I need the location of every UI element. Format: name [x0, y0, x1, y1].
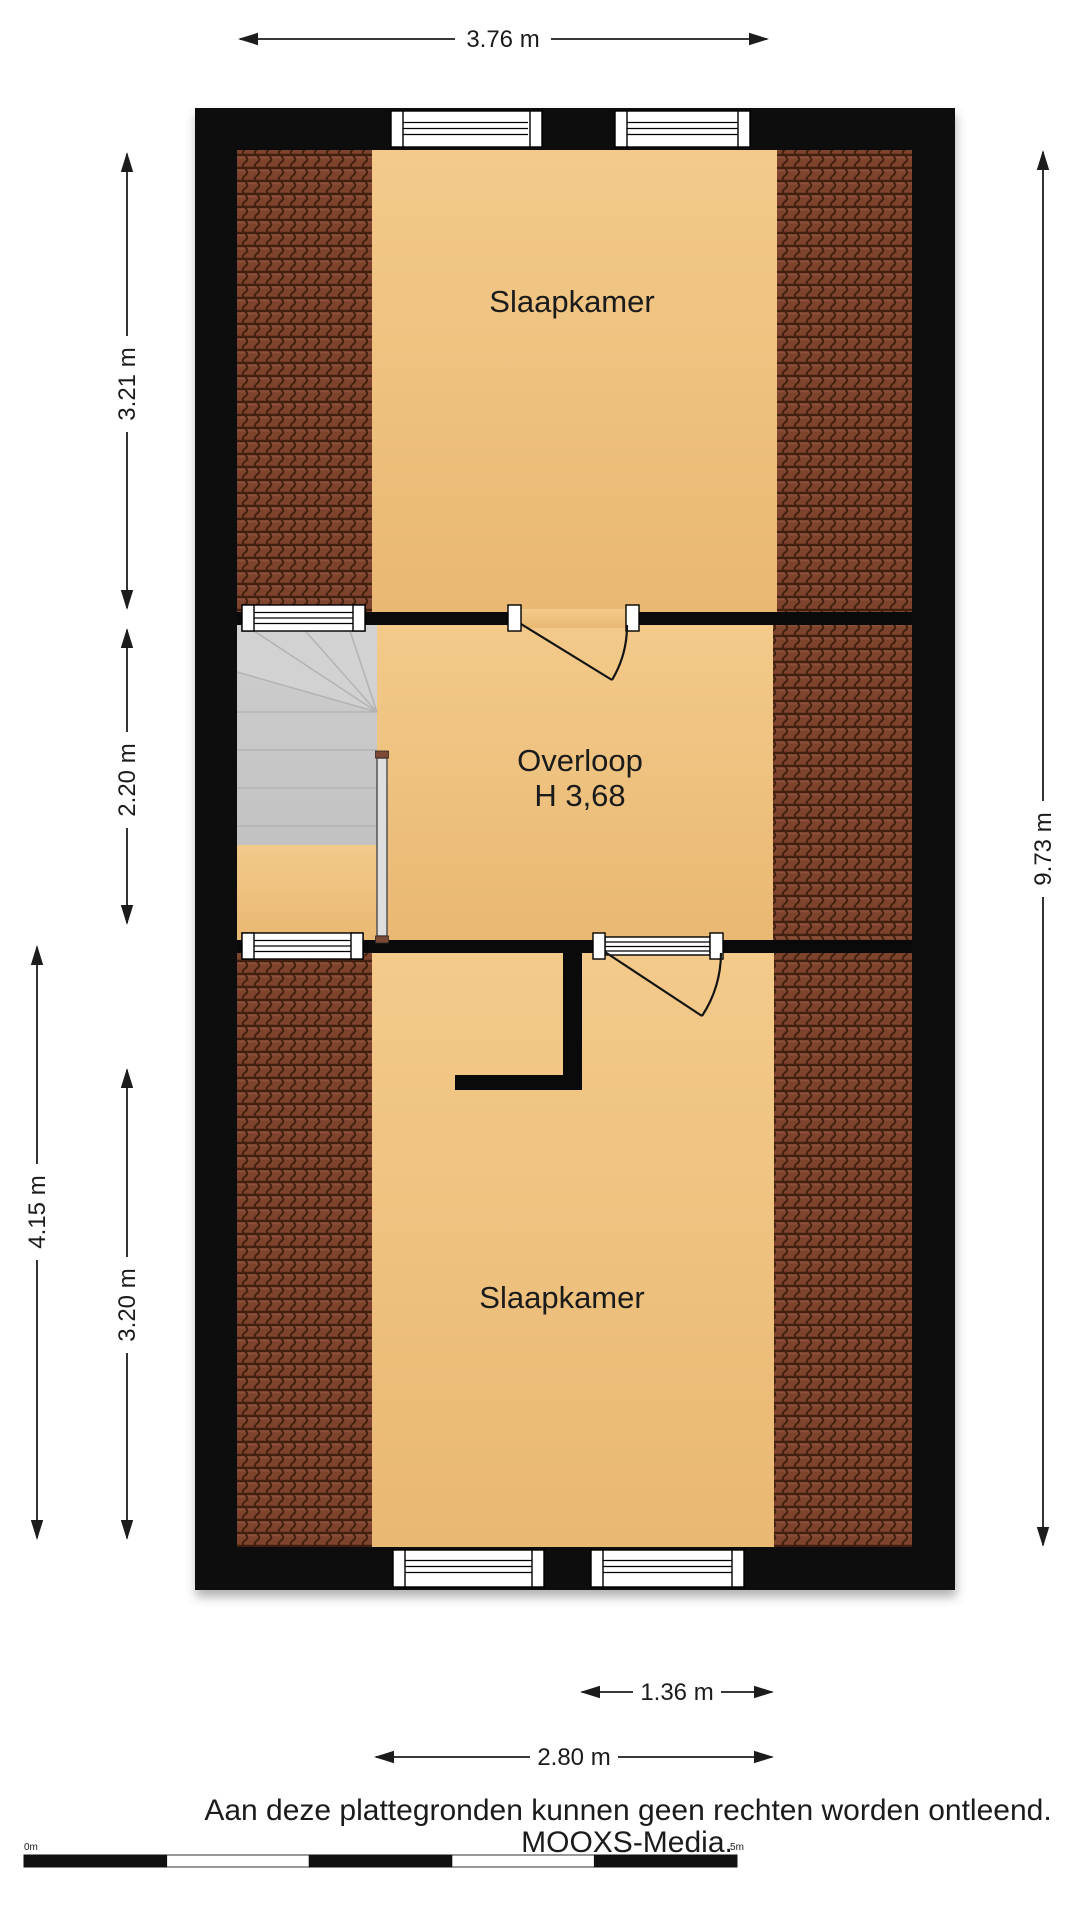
banister-cap-top	[376, 751, 389, 758]
floorplan-canvas: Slaapkamer Overloop H 3,68 Slaapkamer 3.…	[0, 0, 1080, 1920]
landing-floor-under-stairs	[237, 845, 377, 940]
floorplan-page: Slaapkamer Overloop H 3,68 Slaapkamer 3.…	[0, 0, 1080, 1920]
door-opening	[521, 609, 626, 628]
roof-tiles-top-left	[237, 150, 372, 612]
roof-tiles-bottom-right	[774, 953, 912, 1547]
svg-text:2.20 m: 2.20 m	[114, 743, 141, 816]
svg-text:3.76 m: 3.76 m	[466, 26, 539, 53]
dimension-top-width: 3.76 m	[238, 24, 769, 54]
scale-bar-end: 5m	[730, 1842, 744, 1853]
svg-text:2.80 m: 2.80 m	[537, 1744, 610, 1771]
window-bottom-1	[393, 1550, 544, 1587]
footer-disclaimer: Aan deze plattegronden kunnen geen recht…	[204, 1794, 1051, 1827]
label-bedroom-bottom: Slaapkamer	[479, 1280, 644, 1315]
window-top-2	[615, 111, 750, 147]
dimension-bottom-room: 2.80 m	[374, 1742, 774, 1772]
bedroom-top-floor	[372, 150, 777, 612]
building	[195, 108, 955, 1590]
footer-brand: MOOXS-Media.	[521, 1826, 733, 1859]
label-bedroom-top: Slaapkamer	[489, 284, 654, 319]
banister-bar	[377, 758, 387, 936]
label-landing-height: H 3,68	[534, 778, 625, 813]
svg-text:3.21 m: 3.21 m	[114, 347, 141, 420]
window-bottom-2	[591, 1550, 744, 1587]
dimension-left-lower: 3.20 m	[112, 1068, 142, 1540]
scale-bar-start: 0m	[24, 1842, 38, 1853]
dimension-left-middle: 2.20 m	[112, 628, 142, 925]
banister	[376, 751, 389, 943]
dimension-left-upper: 3.21 m	[112, 152, 142, 610]
svg-text:3.20 m: 3.20 m	[114, 1268, 141, 1341]
window-top-1	[391, 111, 542, 147]
partition-wall-horizontal	[455, 1075, 582, 1090]
stairs	[237, 625, 377, 845]
svg-text:4.15 m: 4.15 m	[24, 1175, 51, 1248]
label-landing: Overloop	[517, 743, 643, 778]
partition-wall-vertical	[563, 953, 582, 1090]
window-landing-lower	[242, 933, 363, 959]
svg-text:1.36 m: 1.36 m	[640, 1679, 713, 1706]
dimension-right-height: 9.73 m	[1028, 150, 1058, 1547]
window-landing-upper	[242, 605, 365, 631]
dimension-bottom-door: 1.36 m	[580, 1677, 774, 1707]
banister-cap-bottom	[376, 936, 389, 943]
roof-tiles-landing-right	[773, 625, 912, 940]
svg-text:9.73 m: 9.73 m	[1030, 812, 1057, 885]
roof-tiles-bottom-left	[237, 953, 372, 1547]
dimension-left-outer: 4.15 m	[22, 945, 52, 1540]
roof-tiles-top-right	[777, 150, 912, 612]
